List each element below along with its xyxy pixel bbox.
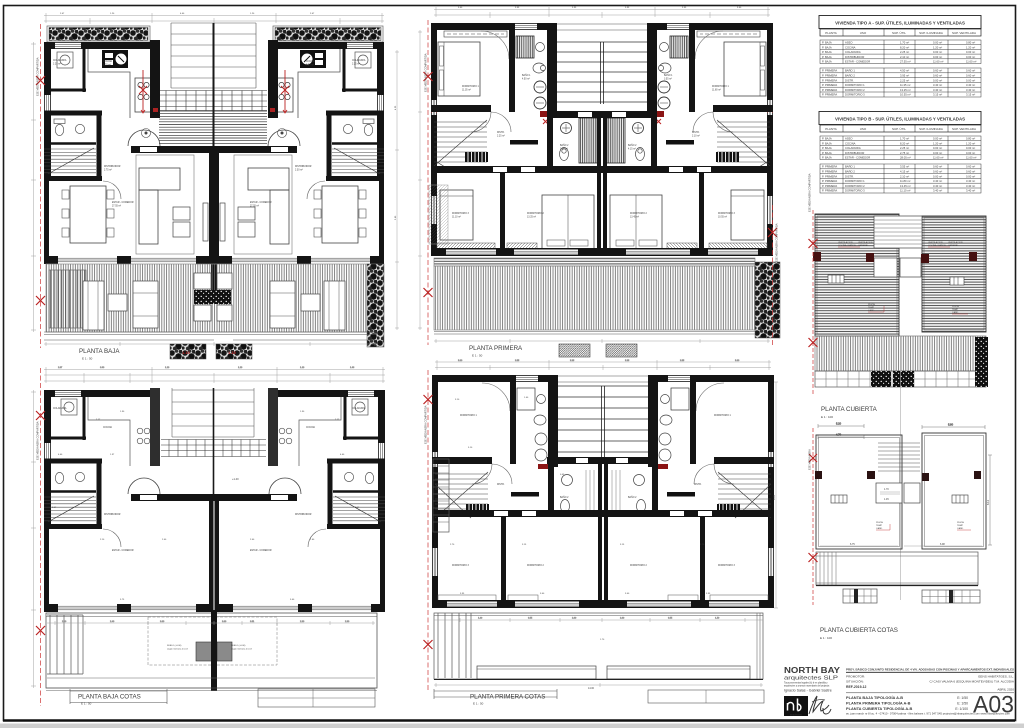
svg-text:1.70 m²: 1.70 m² <box>900 137 909 141</box>
svg-text:4.70: 4.70 <box>836 433 842 437</box>
svg-text:DORMITORIO 1: DORMITORIO 1 <box>845 179 865 183</box>
svg-text:PLANTA BAJA COTAS: PLANTA BAJA COTAS <box>78 694 141 701</box>
svg-text:E: 1/50: E: 1/50 <box>957 702 968 706</box>
svg-text:5.20: 5.20 <box>836 422 842 426</box>
svg-text:PLANTA PRIMERA: PLANTA PRIMERA <box>469 345 523 352</box>
svg-text:ESTAR - COMEDOR: ESTAR - COMEDOR <box>250 201 272 204</box>
svg-text:TEMP: TEMP <box>876 525 883 527</box>
svg-text:BAÑO 1: BAÑO 1 <box>664 74 673 77</box>
svg-text:DORMITORIO 3: DORMITORIO 3 <box>718 213 736 215</box>
svg-text:1.20 m²: 1.20 m² <box>966 45 975 49</box>
svg-text:P. BAJA: P. BAJA <box>822 146 832 150</box>
svg-text:ASEO: ASEO <box>845 137 852 141</box>
svg-text:2.25 m²: 2.25 m² <box>900 78 909 82</box>
svg-text:PROMOTOR:: PROMOTOR: <box>846 675 865 679</box>
svg-text:8.20 m²: 8.20 m² <box>103 64 111 67</box>
svg-text:REF-2019-12: REF-2019-12 <box>846 685 866 689</box>
svg-text:E 1 : 50: E 1 : 50 <box>472 354 483 358</box>
svg-text:2.10 m²: 2.10 m² <box>900 174 909 178</box>
svg-text:28.05 m²: 28.05 m² <box>900 156 911 160</box>
svg-text:8.20 m²: 8.20 m² <box>900 45 909 49</box>
svg-text:E 1 : 100: E 1 : 100 <box>820 636 832 640</box>
svg-text:0.00 m²: 0.00 m² <box>933 174 942 178</box>
svg-text:SUP. ÚTIL: SUP. ÚTIL <box>892 30 906 35</box>
svg-text:P. BAJA: P. BAJA <box>822 50 832 54</box>
svg-text:P. PRIMERA: P. PRIMERA <box>822 165 837 169</box>
svg-text:E: 1/100: E: 1/100 <box>955 707 968 711</box>
svg-text:GENERAL: GENERAL <box>858 244 869 247</box>
svg-text:ESTAR - COMEDOR: ESTAR - COMEDOR <box>845 60 870 64</box>
svg-text:DORMITORIO 3: DORMITORIO 3 <box>718 565 736 567</box>
svg-text:DORMITORIO 3: DORMITORIO 3 <box>452 213 470 215</box>
svg-text:P. PRIMERA: P. PRIMERA <box>822 93 837 97</box>
svg-text:USO: USO <box>860 127 867 131</box>
svg-text:0.60 m²: 0.60 m² <box>933 69 942 73</box>
svg-text:TEMP: TEMP <box>957 525 964 527</box>
svg-text:Ignacio Salas - Gabriel Sastre: Ignacio Salas - Gabriel Sastre <box>784 689 832 693</box>
svg-text:P. BAJA: P. BAJA <box>822 156 832 160</box>
svg-text:EJE MEDIANERA: EJE MEDIANERA <box>808 449 812 470</box>
svg-text:DORMITORIO 1: DORMITORIO 1 <box>845 83 865 87</box>
svg-text:11.60 m²: 11.60 m² <box>933 156 944 160</box>
svg-text:2.25 m²: 2.25 m² <box>352 63 360 66</box>
svg-text:3.95 m²: 3.95 m² <box>900 74 909 78</box>
svg-text:E 1 : 50: E 1 : 50 <box>81 702 92 706</box>
svg-text:PLANTA CUBIERTA COTAS: PLANTA CUBIERTA COTAS <box>820 627 898 634</box>
svg-text:TEMP: TEMP <box>868 307 875 309</box>
svg-text:0.80 m²: 0.80 m² <box>966 137 975 141</box>
svg-text:11.60 m²: 11.60 m² <box>966 60 977 64</box>
svg-text:DISTRIBUIDOR: DISTRIBUIDOR <box>845 55 864 59</box>
svg-text:1.15: 1.15 <box>182 350 191 355</box>
svg-text:1.20 m²: 1.20 m² <box>933 45 942 49</box>
svg-text:P. PRIMERA: P. PRIMERA <box>822 179 837 183</box>
svg-text:PLETA: PLETA <box>876 521 883 524</box>
svg-text:PLANTA: PLANTA <box>825 127 836 131</box>
svg-text:CAND: CAND <box>957 527 964 530</box>
svg-text:DISTRIBUIDOR: DISTRIBUIDOR <box>104 514 121 516</box>
svg-text:0.60 m²: 0.60 m² <box>966 165 975 169</box>
svg-text:PLANTA CUBIERTA TIPOLOGÍA A-B: PLANTA CUBIERTA TIPOLOGÍA A-B <box>846 706 912 711</box>
svg-text:DISTR.: DISTR. <box>692 132 700 134</box>
svg-text:PLETA: PLETA <box>952 305 959 308</box>
svg-text:COLADURIA: COLADURIA <box>352 59 366 62</box>
svg-text:EENS HABITATGES, S.L.: EENS HABITATGES, S.L. <box>978 675 1014 679</box>
svg-text:P. BAJA: P. BAJA <box>822 45 832 49</box>
svg-text:3.40 m²: 3.40 m² <box>933 184 942 188</box>
svg-text:2.75 m²: 2.75 m² <box>104 169 112 172</box>
svg-text:0.60 m²: 0.60 m² <box>966 170 975 174</box>
svg-text:arquitectes SLP: arquitectes SLP <box>784 676 839 682</box>
svg-text:ESTAR - COMEDOR: ESTAR - COMEDOR <box>112 549 134 552</box>
svg-text:DORMITORIO 2: DORMITORIO 2 <box>527 213 545 215</box>
svg-text:0.00 m²: 0.00 m² <box>966 55 975 59</box>
svg-text:PLETA: PLETA <box>868 303 875 306</box>
svg-text:VIVIENDA TIPO B - SUP. ÚTILES,: VIVIENDA TIPO B - SUP. ÚTILES, ILUMINADA… <box>835 117 965 122</box>
svg-text:3.40 m²: 3.40 m² <box>966 88 975 92</box>
svg-text:ASEO: ASEO <box>845 41 852 45</box>
svg-text:EJE MEDIANERA COMPARTIDA: EJE MEDIANERA COMPARTIDA <box>775 223 779 262</box>
svg-text:2.30 m²: 2.30 m² <box>295 169 303 172</box>
svg-text:0.00 m²: 0.00 m² <box>933 50 942 54</box>
svg-text:0.00 m²: 0.00 m² <box>966 78 975 82</box>
svg-text:VENTILACION: VENTILACION <box>948 241 963 244</box>
svg-text:DISTR.: DISTR. <box>694 484 702 486</box>
svg-text:0.00 m²: 0.00 m² <box>933 137 942 141</box>
svg-text:CAND: CAND <box>952 311 959 314</box>
svg-text:3.40 m²: 3.40 m² <box>966 184 975 188</box>
svg-text:2.25 m²: 2.25 m² <box>497 135 505 138</box>
svg-text:EJE MEDIANERA COMPARTIDA: EJE MEDIANERA COMPARTIDA <box>808 173 812 212</box>
svg-text:COLADURIA: COLADURIA <box>845 146 861 150</box>
svg-text:13.45 m²: 13.45 m² <box>630 216 639 219</box>
svg-text:P. BAJA: P. BAJA <box>822 41 832 45</box>
svg-text:0.00 m²: 0.00 m² <box>966 174 975 178</box>
svg-text:4.15 m²: 4.15 m² <box>900 170 909 174</box>
svg-text:DORMITORIO 3: DORMITORIO 3 <box>452 565 470 567</box>
svg-text:11.10 m²: 11.10 m² <box>452 216 461 219</box>
svg-text:3.40 m²: 3.40 m² <box>933 88 942 92</box>
svg-text:BAÑO 2: BAÑO 2 <box>628 496 637 499</box>
svg-text:arquitectes: arquitectes <box>790 713 802 716</box>
svg-text:PLETA: PLETA <box>957 521 964 524</box>
svg-text:SUP. VENTILADA: SUP. VENTILADA <box>952 127 976 131</box>
svg-text:E 1 : 50: E 1 : 50 <box>473 702 484 706</box>
svg-text:SUP. ÚTIL: SUP. ÚTIL <box>892 126 906 131</box>
svg-text:3.40 m²: 3.40 m² <box>933 179 942 183</box>
svg-text:0.60 m²: 0.60 m² <box>933 165 942 169</box>
svg-text:13.25 m²: 13.25 m² <box>900 88 911 92</box>
svg-text:3.15 m²: 3.15 m² <box>966 93 975 97</box>
svg-text:P. PRIMERA: P. PRIMERA <box>822 174 837 178</box>
svg-text:2.25 m²: 2.25 m² <box>900 50 909 54</box>
svg-text:EJE MEDIANERA COMPARTIDA: EJE MEDIANERA COMPARTIDA <box>424 405 428 444</box>
svg-text:27.55 m²: 27.55 m² <box>900 60 911 64</box>
svg-text:11.60 m²: 11.60 m² <box>966 156 977 160</box>
svg-text:EJE MEDIANERA COMPARTIDA: EJE MEDIANERA COMPARTIDA <box>36 421 40 460</box>
svg-text:3.40 m²: 3.40 m² <box>933 189 942 193</box>
svg-text:Toca promemias legales (b) b e: Toca promemias legales (b) b en plantill… <box>784 682 828 685</box>
svg-text:0.80 m²: 0.80 m² <box>966 41 975 45</box>
svg-text:C/ CASI VALMIA 6 (ESQUINA MONT: C/ CASI VALMIA 6 (ESQUINA MONTEVIDEU) T.… <box>930 680 1015 684</box>
svg-text:VENTILACION: VENTILACION <box>858 241 873 244</box>
svg-text:COLADURIA: COLADURIA <box>352 407 366 410</box>
svg-text:0.60 m²: 0.60 m² <box>933 170 942 174</box>
svg-text:2.10 m²: 2.10 m² <box>900 55 909 59</box>
svg-text:1.70 m²: 1.70 m² <box>900 41 909 45</box>
svg-text:E: 1/50: E: 1/50 <box>957 696 968 700</box>
svg-text:PLANTA CUBIERTA: PLANTA CUBIERTA <box>821 406 878 413</box>
svg-text:P. PRIMERA: P. PRIMERA <box>822 74 837 78</box>
svg-text:2.10 m²: 2.10 m² <box>692 135 700 138</box>
svg-text:COCINA: COCINA <box>103 426 112 429</box>
svg-text:EJE MEDIANERA COMPARTIDA: EJE MEDIANERA COMPARTIDA <box>36 57 40 96</box>
svg-text:DORMITORIO 2: DORMITORIO 2 <box>630 565 648 567</box>
svg-text:SUP. VENTILADA: SUP. VENTILADA <box>952 31 976 35</box>
svg-text:8.20 m²: 8.20 m² <box>306 64 314 67</box>
svg-text:COLADURIA: COLADURIA <box>53 407 67 410</box>
svg-text:DISTR.: DISTR. <box>497 484 505 486</box>
svg-text:3.40 m²: 3.40 m² <box>966 189 975 193</box>
svg-text:DISTRIBUIDOR: DISTRIBUIDOR <box>295 166 312 168</box>
svg-text:13.25 m²: 13.25 m² <box>527 216 536 219</box>
svg-text:DISTR.: DISTR. <box>845 174 854 178</box>
svg-text:P. PRIMERA: P. PRIMERA <box>822 88 837 92</box>
svg-text:1.45: 1.45 <box>884 498 889 501</box>
svg-text:GENERAL: GENERAL <box>948 244 959 247</box>
svg-text:P. PRIMERA: P. PRIMERA <box>822 83 837 87</box>
svg-text:COCINA: COCINA <box>845 45 856 49</box>
svg-text:ESTAR - COMEDOR: ESTAR - COMEDOR <box>250 549 272 552</box>
svg-text:DORMITORIO 2: DORMITORIO 2 <box>845 184 865 188</box>
svg-text:COCINA: COCINA <box>306 60 315 63</box>
svg-text:2.75 m²: 2.75 m² <box>900 151 909 155</box>
svg-text:P. PRIMERA: P. PRIMERA <box>822 78 837 82</box>
svg-text:P. PRIMERA: P. PRIMERA <box>822 184 837 188</box>
svg-text:0.00 m²: 0.00 m² <box>966 50 975 54</box>
svg-text:0.00 m²: 0.00 m² <box>966 151 975 155</box>
svg-text:P. PRIMERA: P. PRIMERA <box>822 189 837 193</box>
svg-text:VENTILACION: VENTILACION <box>838 241 853 244</box>
svg-text:DORMITORIO 2: DORMITORIO 2 <box>630 213 648 215</box>
svg-text:A03: A03 <box>973 692 1014 719</box>
svg-text:1.15: 1.15 <box>228 350 237 355</box>
svg-text:DORMITORIO 2: DORMITORIO 2 <box>527 565 545 567</box>
svg-text:VENTILACION: VENTILACION <box>928 241 943 244</box>
svg-text:EJE MEDIANERA COMPARTIDA: EJE MEDIANERA COMPARTIDA <box>424 53 428 92</box>
svg-text:2.25 m²: 2.25 m² <box>53 63 61 66</box>
svg-text:P. PRIMERA: P. PRIMERA <box>822 170 837 174</box>
svg-text:P. BAJA: P. BAJA <box>822 60 832 64</box>
svg-text:PLANTA PRIMERA COTAS: PLANTA PRIMERA COTAS <box>470 694 545 701</box>
svg-text:4.50 m²: 4.50 m² <box>522 78 530 81</box>
svg-text:DISTRIBUIDOR: DISTRIBUIDOR <box>104 166 121 168</box>
svg-text:BAÑO 2: BAÑO 2 <box>628 144 637 147</box>
svg-text:TEMP: TEMP <box>952 309 959 311</box>
svg-text:P. BAJA: P. BAJA <box>822 141 832 145</box>
svg-text:13.45 m²: 13.45 m² <box>900 184 911 188</box>
svg-text:PROY. BÁSICO CONJUNTO RESIDENC: PROY. BÁSICO CONJUNTO RESIDENCIAL DE 4 V… <box>846 667 1014 672</box>
svg-text:0.60 m²: 0.60 m² <box>966 74 975 78</box>
svg-text:3.40 m²: 3.40 m² <box>966 83 975 87</box>
svg-text:10.55 m²: 10.55 m² <box>718 216 727 219</box>
svg-text:3.40 m²: 3.40 m² <box>966 179 975 183</box>
svg-text:0.00 m²: 0.00 m² <box>933 55 942 59</box>
svg-text:E 1 : 100: E 1 : 100 <box>821 415 833 419</box>
svg-text:11.80 m²: 11.80 m² <box>900 179 911 183</box>
svg-text:según memoria 2.5.13: según memoria 2.5.13 <box>167 648 189 651</box>
svg-text:0.00 m²: 0.00 m² <box>933 151 942 155</box>
svg-text:11.35 m²: 11.35 m² <box>462 89 471 92</box>
svg-text:P. BAJA: P. BAJA <box>822 55 832 59</box>
svg-text:10.55 m²: 10.55 m² <box>900 93 911 97</box>
svg-text:SUELO (+0.00): SUELO (+0.00) <box>231 645 246 647</box>
svg-text:27.55 m²: 27.55 m² <box>250 205 259 208</box>
svg-text:E 1 : 50: E 1 : 50 <box>82 357 93 361</box>
svg-text:CAND: CAND <box>876 527 883 530</box>
svg-text:1.70: 1.70 <box>884 488 889 491</box>
svg-text:6.12: 6.12 <box>986 499 990 505</box>
svg-text:6.75: 6.75 <box>850 543 855 546</box>
svg-text:DISTR.: DISTR. <box>845 78 854 82</box>
svg-text:BAÑO 1: BAÑO 1 <box>522 74 531 77</box>
svg-text:0.00 m²: 0.00 m² <box>933 146 942 150</box>
svg-text:CAND: CAND <box>868 309 875 312</box>
svg-text:SUELO (+0.00): SUELO (+0.00) <box>167 645 182 647</box>
svg-text:SUP. ILUMINADA: SUP. ILUMINADA <box>919 127 943 131</box>
svg-text:0.60 m²: 0.60 m² <box>966 69 975 73</box>
svg-text:0.00 m²: 0.00 m² <box>966 146 975 150</box>
svg-text:COCINA: COCINA <box>103 60 112 63</box>
svg-text:arquitectes o promot nsoendari: arquitectes o promot nsoendaris del proj… <box>784 684 830 687</box>
svg-text:6.98: 6.98 <box>940 543 945 546</box>
svg-text:BAÑO 2: BAÑO 2 <box>560 144 569 147</box>
svg-text:2.25 m²: 2.25 m² <box>900 146 909 150</box>
svg-text:1.20 m²: 1.20 m² <box>933 141 942 145</box>
svg-text:DORMITORIO 3: DORMITORIO 3 <box>845 189 865 193</box>
svg-text:según memoria 2.5.13: según memoria 2.5.13 <box>231 648 253 651</box>
svg-text:P. BAJA: P. BAJA <box>822 137 832 141</box>
svg-text:COCINA / BAÑOS: COCINA / BAÑOS <box>838 244 856 247</box>
svg-text:0.00 m²: 0.00 m² <box>933 41 942 45</box>
svg-text:DORMITORIO 3: DORMITORIO 3 <box>845 93 865 97</box>
svg-text:COLADURIA: COLADURIA <box>845 50 861 54</box>
svg-text:+1.40: +1.40 <box>232 477 239 481</box>
svg-text:COLADURIA: COLADURIA <box>53 59 67 62</box>
svg-text:1.20 m²: 1.20 m² <box>966 141 975 145</box>
svg-text:4.15 m²: 4.15 m² <box>628 148 636 151</box>
svg-text:PLANTA BAJA TIPOLOGÍA A-B: PLANTA BAJA TIPOLOGÍA A-B <box>846 695 903 700</box>
svg-text:DORMITORIO 1: DORMITORIO 1 <box>712 86 730 88</box>
svg-text:3.40 m²: 3.40 m² <box>933 83 942 87</box>
svg-text:DISTR.: DISTR. <box>497 132 505 134</box>
svg-text:P. BAJA: P. BAJA <box>822 151 832 155</box>
svg-text:COCINA / BAÑOS: COCINA / BAÑOS <box>928 244 946 247</box>
svg-text:0.60 m²: 0.60 m² <box>933 74 942 78</box>
svg-text:BAÑO 2: BAÑO 2 <box>560 496 569 499</box>
svg-text:DISTRIBUIDOR: DISTRIBUIDOR <box>295 514 312 516</box>
svg-text:DORMITORIO 1: DORMITORIO 1 <box>714 415 732 417</box>
svg-text:3.15 m²: 3.15 m² <box>933 93 942 97</box>
svg-text:COCINA: COCINA <box>845 141 856 145</box>
svg-text:4.50 m²: 4.50 m² <box>900 69 909 73</box>
svg-text:ESTAR - COMEDOR: ESTAR - COMEDOR <box>112 201 134 204</box>
svg-text:11.60 m²: 11.60 m² <box>933 60 944 64</box>
svg-text:11.10 m²: 11.10 m² <box>900 189 911 193</box>
svg-text:3.95 m²: 3.95 m² <box>560 148 568 151</box>
svg-text:ESTAR - COMEDOR: ESTAR - COMEDOR <box>845 156 870 160</box>
svg-text:3.55 m²: 3.55 m² <box>664 78 672 81</box>
svg-text:3.55 m²: 3.55 m² <box>900 165 909 169</box>
svg-text:NORTH BAY: NORTH BAY <box>784 666 841 675</box>
svg-text:27.55 m²: 27.55 m² <box>112 205 121 208</box>
svg-text:VIVIENDA TIPO A - SUP. ÚTILES,: VIVIENDA TIPO A - SUP. ÚTILES, ILUMINADA… <box>835 21 965 26</box>
svg-text:14.00: 14.00 <box>588 687 595 690</box>
svg-text:PLANTA BAJA: PLANTA BAJA <box>79 348 120 355</box>
svg-text:DISTRIBUIDOR: DISTRIBUIDOR <box>845 151 864 155</box>
svg-text:0.00 m²: 0.00 m² <box>933 78 942 82</box>
svg-text:SITUACIÓN:: SITUACIÓN: <box>846 679 864 684</box>
svg-text:11.35 m²: 11.35 m² <box>900 83 911 87</box>
svg-text:PLANTA: PLANTA <box>825 31 836 35</box>
svg-text:11.80 m²: 11.80 m² <box>712 89 721 92</box>
svg-text:8.20 m²: 8.20 m² <box>900 141 909 145</box>
svg-text:9.05: 9.05 <box>772 494 776 500</box>
svg-text:COCINA: COCINA <box>306 426 315 429</box>
svg-text:5.90: 5.90 <box>948 423 954 427</box>
svg-text:DORMITORIO 1: DORMITORIO 1 <box>462 86 480 88</box>
svg-text:USO: USO <box>860 31 867 35</box>
svg-text:DORMITORIO 1: DORMITORIO 1 <box>460 415 478 417</box>
svg-text:SUP. ILUMINADA: SUP. ILUMINADA <box>919 31 943 35</box>
svg-text:PLANTA PRIMERA TIPOLOGÍA A-B: PLANTA PRIMERA TIPOLOGÍA A-B <box>846 701 911 706</box>
svg-text:DORMITORIO 2: DORMITORIO 2 <box>845 88 865 92</box>
svg-text:P. PRIMERA: P. PRIMERA <box>822 69 837 73</box>
